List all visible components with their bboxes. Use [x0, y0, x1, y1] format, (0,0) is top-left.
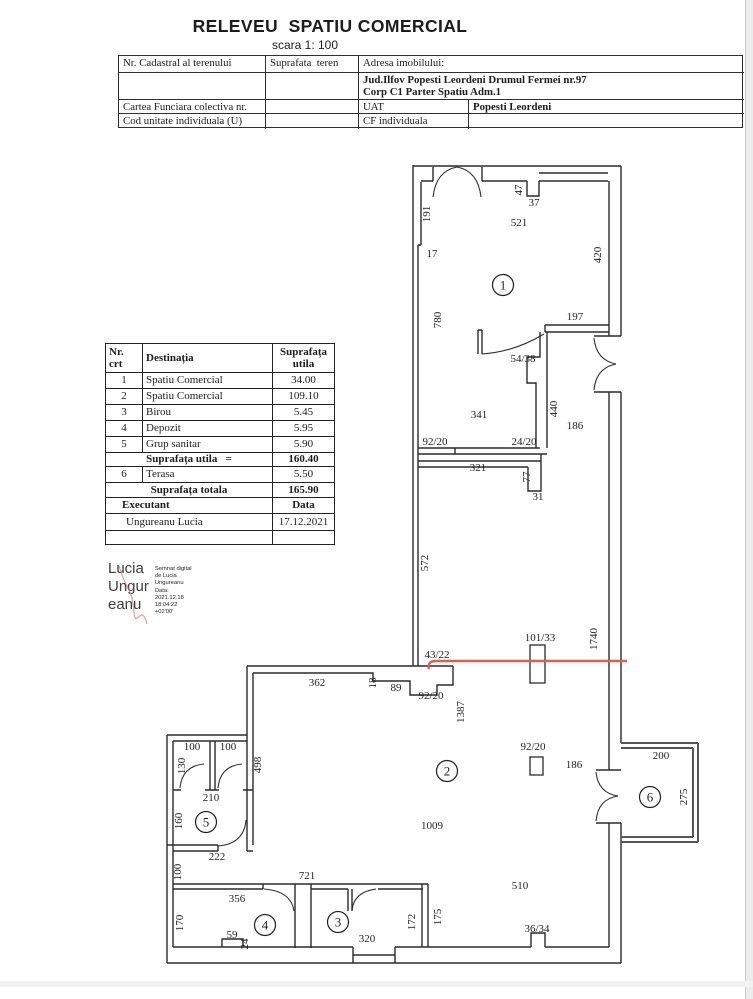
pillar-101-33 [530, 645, 545, 683]
dimension-label: 440 [548, 400, 560, 417]
dimension-label: 321 [470, 462, 487, 474]
dimension-label: 197 [567, 311, 584, 323]
dimension-label: 92/20 [520, 741, 546, 753]
dimension-label: 100 [184, 741, 201, 753]
dimension-label: 77 [521, 471, 533, 483]
walls-right-section [594, 392, 621, 963]
dimension-label: 420 [592, 246, 604, 263]
dimension-label: 362 [309, 677, 326, 689]
dimension-label: 47 [513, 184, 525, 196]
dimension-label: 101/33 [525, 632, 556, 644]
dimension-label: 341 [471, 409, 488, 421]
room-number: 5 [203, 815, 210, 830]
dimension-label: 186 [566, 759, 583, 771]
signature-stroke [119, 566, 147, 624]
dimension-label: 100 [172, 863, 184, 880]
dimension-label: 498 [252, 756, 264, 773]
dimension-label: 43/22 [424, 649, 449, 661]
walls-top-section [413, 165, 621, 666]
dimension-label: 24 [239, 938, 251, 950]
room-number: 4 [262, 918, 269, 933]
dimension-label: 92/20 [418, 690, 444, 702]
door-arcs [180, 167, 618, 911]
dimension-label: 37 [529, 197, 541, 209]
room-circles: 123456 [196, 275, 661, 936]
dimension-label: 200 [653, 750, 670, 762]
dimension-label: 521 [511, 217, 528, 229]
dimension-label: 59 [227, 929, 239, 941]
room-number: 2 [444, 764, 451, 779]
dimension-label: 320 [359, 933, 376, 945]
dimension-label: 18 [367, 677, 379, 689]
dimension-labels: 19117521473742078019754/3834144018692/20… [172, 184, 690, 950]
dimension-label: 572 [419, 555, 431, 572]
room-number: 3 [335, 915, 342, 930]
dimension-label: 721 [299, 870, 316, 882]
pillar-92-20 [530, 757, 543, 775]
dimension-label: 275 [678, 788, 690, 805]
document-page: { "page": { "title": "RELEVEU SPATIU COM… [0, 0, 753, 999]
dimension-label: 186 [567, 420, 584, 432]
red-marker-line [429, 661, 627, 669]
dimension-label: 191 [421, 206, 433, 223]
dimension-label: 510 [512, 880, 529, 892]
floorplan-drawing: 19117521473742078019754/3834144018692/20… [0, 0, 753, 999]
dimension-label: 31 [533, 491, 544, 503]
dimension-label: 1387 [455, 701, 467, 724]
dimension-label: 17 [427, 248, 439, 260]
dimension-label: 780 [432, 311, 444, 328]
dimension-label: 1740 [588, 628, 600, 651]
dimension-label: 172 [406, 914, 418, 931]
room-number: 1 [500, 278, 507, 293]
dimension-label: 356 [229, 893, 246, 905]
dimension-label: 36/34 [524, 923, 550, 935]
room-number: 6 [647, 790, 654, 805]
dimension-label: 175 [432, 908, 444, 925]
dimension-label: 92/20 [422, 436, 448, 448]
dimension-label: 1009 [421, 820, 444, 832]
dimension-label: 170 [174, 914, 186, 931]
dimension-label: 160 [173, 812, 185, 829]
dimension-label: 24/20 [511, 436, 537, 448]
dimension-label: 89 [391, 682, 403, 694]
dimension-label: 54/38 [510, 353, 536, 365]
dimension-label: 100 [220, 741, 237, 753]
dimension-label: 130 [176, 757, 188, 774]
dimension-label: 210 [203, 792, 220, 804]
dimension-label: 222 [209, 851, 226, 863]
